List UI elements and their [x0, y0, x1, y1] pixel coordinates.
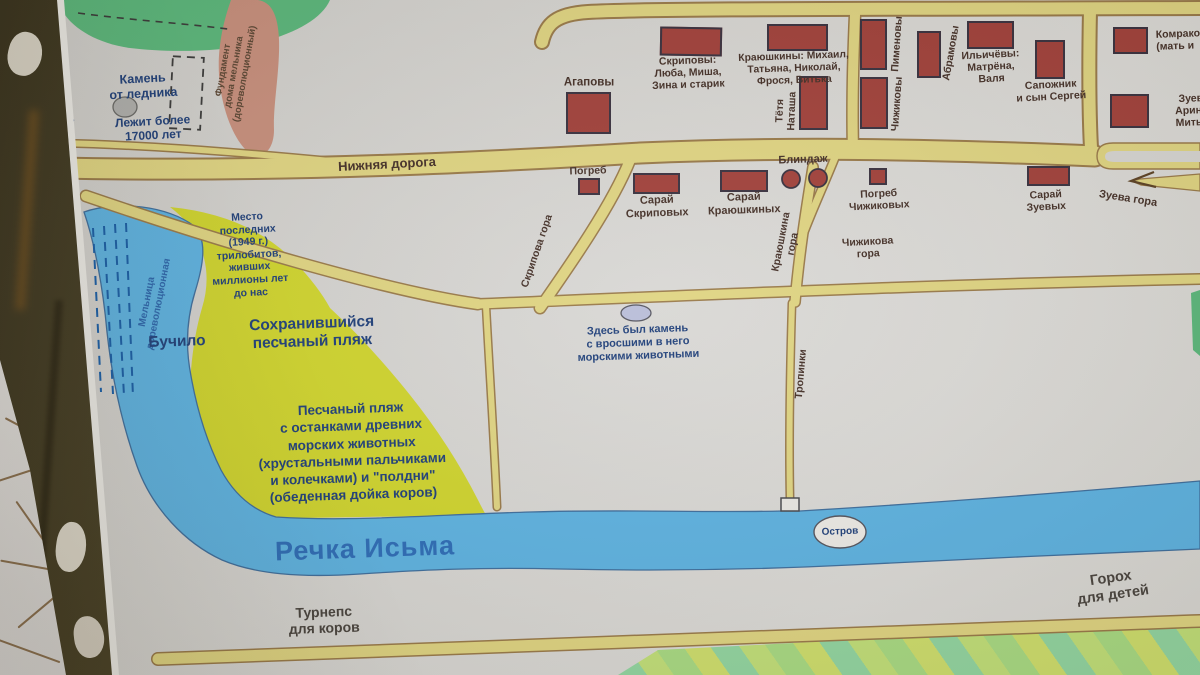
label-sapozhnik: Сапожники сын Сергей — [1015, 77, 1086, 105]
house-pimenovy — [860, 19, 887, 70]
label-sandy-beach: Песчаный пляжс останками древнихморских … — [256, 397, 447, 507]
saray-zuevykh — [1027, 166, 1070, 186]
bridge — [781, 498, 799, 511]
label-pogreb-skripovykh: Погреб — [569, 164, 606, 177]
sea-stone-shape — [621, 305, 651, 321]
forest-sliver — [1191, 290, 1200, 356]
house-agapovy — [566, 92, 611, 134]
saray-krayushkinykh — [720, 170, 768, 192]
label-river: Речка Исьма — [274, 530, 455, 568]
label-zuevy: Зуевы:Аринка,Митька, — [1157, 92, 1200, 131]
house-zuevy — [1110, 94, 1149, 128]
map-board-photo: Ожневка Каменьот ледника Лежит более1700… — [0, 0, 1200, 675]
blindazh-circle — [809, 169, 827, 187]
label-trilobites: Местопоследних(1949 г.)трилобитов,живших… — [209, 209, 290, 301]
label-glacier-age: Лежит более17000 лет — [115, 113, 192, 145]
label-glacier-stone: Каменьот ледника — [108, 70, 177, 103]
house-krayushkiny — [767, 24, 828, 51]
label-island: Остров — [822, 526, 859, 539]
label-pogreb-chizhikovykh: ПогребЧижиковых — [848, 186, 910, 213]
label-blindazh: Блиндаж — [778, 153, 828, 167]
blindazh-circle — [782, 170, 800, 188]
label-stone-here: Здесь был каменьс вросшими в негоморским… — [577, 322, 700, 364]
house-sapozhnik — [1035, 40, 1065, 79]
pogreb-chizhikovykh — [869, 168, 887, 185]
label-ilichyovy: Ильичёвы:Матрёна,Валя — [961, 47, 1021, 87]
road-hairpin-inner — [1105, 151, 1200, 162]
label-saray-skripovykh: СарайСкриповых — [625, 193, 688, 221]
label-krayushkiny: Краюшкины: Михаил,Татьяна, Николай,Фрося… — [738, 49, 850, 89]
house-chizhikovy — [860, 77, 888, 129]
label-skripovy: Скриповы:Люба, Миша,Зина и старик — [651, 53, 725, 92]
label-tetya-natasha: ТётяНаташа — [773, 91, 799, 131]
label-chizhikova-gora: Чижиковагора — [842, 234, 895, 261]
house-abramovy — [917, 31, 941, 78]
label-komrakovy: Комраковы(мать и — [1156, 27, 1200, 53]
house-skripovy — [660, 26, 722, 56]
label-buchilo: Бучило — [148, 332, 206, 352]
pogreb-skripovykh — [578, 178, 600, 195]
house-komrakovy — [1113, 27, 1148, 54]
label-saray-zuevykh: СарайЗуевых — [1026, 188, 1067, 214]
house-ilichyovy — [967, 21, 1014, 49]
saray-skripovykh — [633, 173, 680, 194]
label-turnips: Турнепсдля коров — [288, 603, 360, 638]
label-agapovy: Агаповы — [564, 76, 614, 89]
label-preserved-beach: Сохранившийсяпесчаный пляж — [249, 313, 375, 353]
label-saray-krayushkinykh: СарайКраюшкиных — [707, 190, 780, 218]
